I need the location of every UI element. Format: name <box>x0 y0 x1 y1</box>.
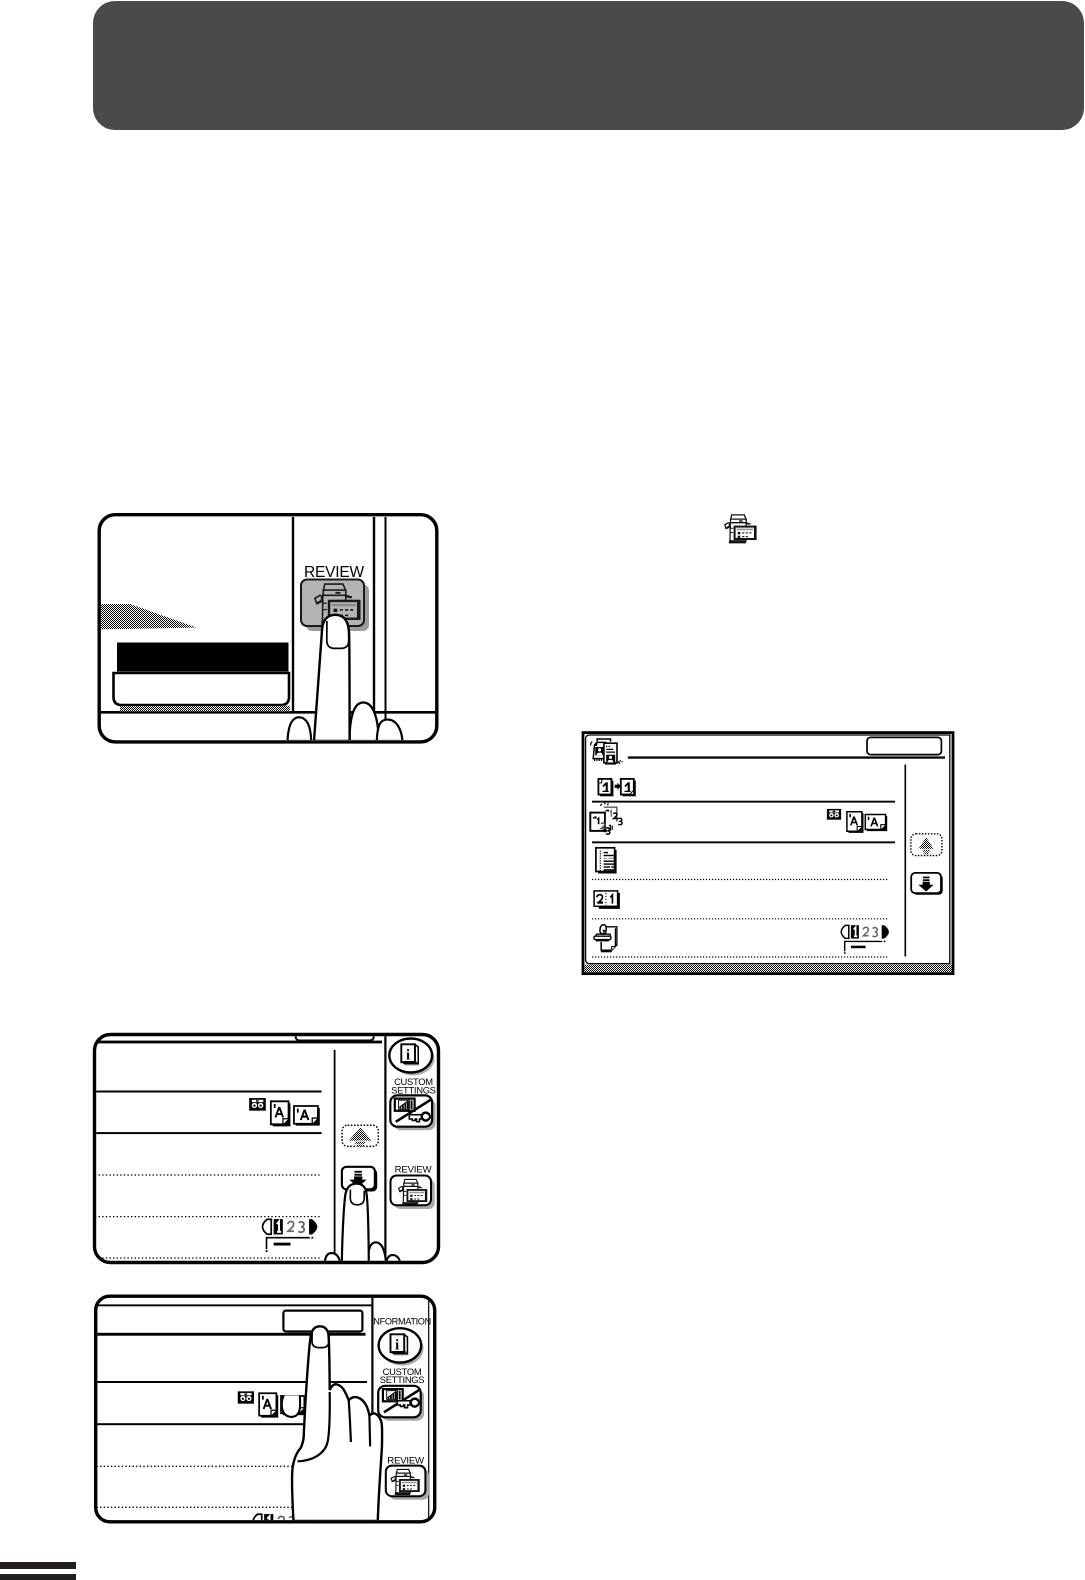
svg-text:i: i <box>406 1047 410 1063</box>
svg-text:INFORMATION: INFORMATION <box>371 1317 431 1327</box>
svg-text:REVIEW: REVIEW <box>304 564 365 581</box>
svg-text:SETTINGS: SETTINGS <box>391 1085 436 1096</box>
svg-text:REVIEW: REVIEW <box>395 1165 433 1176</box>
svg-text:i: i <box>395 1337 399 1353</box>
svg-text:SETTINGS: SETTINGS <box>380 1374 425 1385</box>
